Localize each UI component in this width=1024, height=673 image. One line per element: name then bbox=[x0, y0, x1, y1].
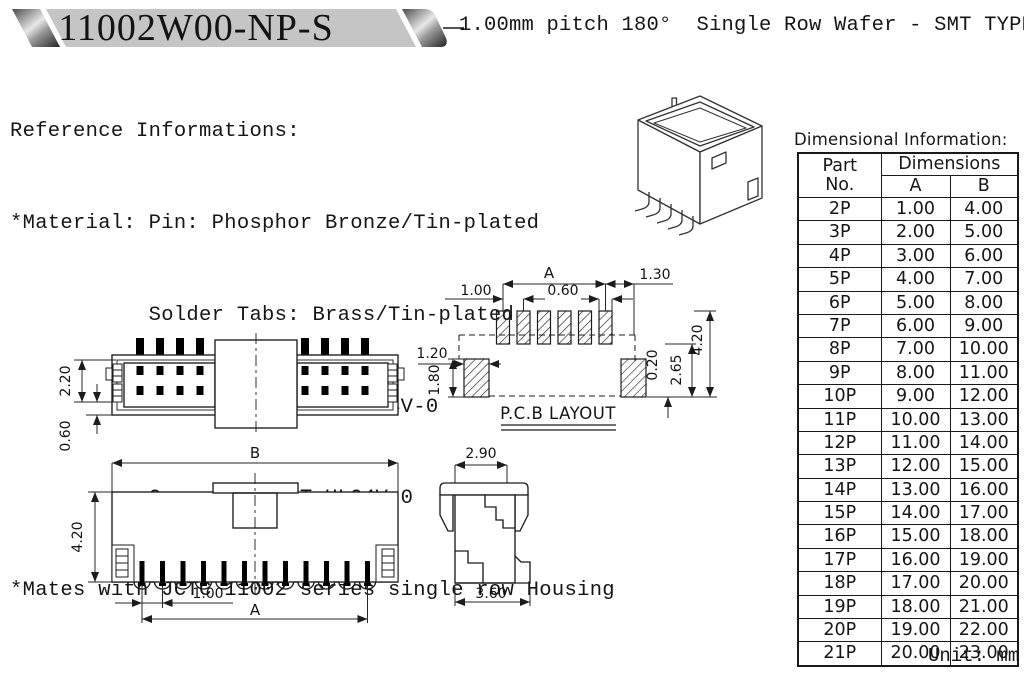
side-view-right-tab bbox=[515, 495, 528, 531]
part-no-cell: 20P bbox=[798, 619, 881, 642]
dimensions-header: Dimensions bbox=[881, 153, 1018, 176]
dim-a-cell: 1.00 bbox=[881, 198, 950, 221]
part-no-cell: 17P bbox=[798, 548, 881, 571]
dim-b-cell: 7.00 bbox=[950, 268, 1018, 291]
part-no-cell: 12P bbox=[798, 431, 881, 454]
table-row: 18P17.0020.00 bbox=[798, 572, 1018, 595]
dim-label-4-20: 4.20 bbox=[690, 324, 706, 355]
part-no-cell: 8P bbox=[798, 338, 881, 361]
part-no-cell: 3P bbox=[798, 221, 881, 244]
dim-b-cell: 21.00 bbox=[950, 595, 1018, 618]
dim-a-cell: 6.00 bbox=[881, 314, 950, 337]
dim-a-cell: 16.00 bbox=[881, 548, 950, 571]
dimension-table: PartNo. Dimensions A B 2P1.004.00 3P2.00… bbox=[797, 152, 1019, 667]
table-row: 8P7.0010.00 bbox=[798, 338, 1018, 361]
dim-b-cell: 17.00 bbox=[950, 502, 1018, 525]
table-row: 19P18.0021.00 bbox=[798, 595, 1018, 618]
part-no-cell: 16P bbox=[798, 525, 881, 548]
part-no-cell: 19P bbox=[798, 595, 881, 618]
part-number: 11002W00-NP-S bbox=[58, 7, 333, 49]
pcb-pads bbox=[464, 311, 646, 397]
dim-label-3-60: 3.60 bbox=[475, 586, 506, 602]
part-no-cell: 18P bbox=[798, 572, 881, 595]
dim-b-cell: 20.00 bbox=[950, 572, 1018, 595]
part-no-cell: 4P bbox=[798, 244, 881, 267]
table-row: 2P1.004.00 bbox=[798, 198, 1018, 221]
dim-b-cell: 19.00 bbox=[950, 548, 1018, 571]
dim-a-cell: 11.00 bbox=[881, 431, 950, 454]
dim-label-2-20: 2.20 bbox=[58, 365, 74, 396]
dim-b-cell: 14.00 bbox=[950, 431, 1018, 454]
dim-a-cell: 9.00 bbox=[881, 385, 950, 408]
table-row: 12P11.0014.00 bbox=[798, 431, 1018, 454]
table-row: 7P6.009.00 bbox=[798, 314, 1018, 337]
title-banner: 11002W00-NP-S bbox=[0, 0, 470, 56]
side-view-flange bbox=[440, 483, 528, 495]
table-row: 14P13.0016.00 bbox=[798, 478, 1018, 501]
dim-b-cell: 10.00 bbox=[950, 338, 1018, 361]
dim-b-cell: 12.00 bbox=[950, 385, 1018, 408]
side-view-left-tab bbox=[440, 495, 453, 531]
dim-a-cell: 12.00 bbox=[881, 455, 950, 478]
part-no-cell: 21P bbox=[798, 642, 881, 666]
table-row: 13P12.0015.00 bbox=[798, 455, 1018, 478]
table-row: 15P14.0017.00 bbox=[798, 502, 1018, 525]
part-no-cell: 7P bbox=[798, 314, 881, 337]
part-no-header: PartNo. bbox=[798, 153, 881, 198]
dim-a-cell: 8.00 bbox=[881, 361, 950, 384]
dim-a-cell: 2.00 bbox=[881, 221, 950, 244]
pcb-left-tab-pad bbox=[464, 359, 489, 397]
side-view-dim-360: 3.60 bbox=[455, 586, 530, 606]
dim-label-a: A bbox=[250, 601, 261, 619]
part-no-cell: 13P bbox=[798, 455, 881, 478]
part-no-cell: 11P bbox=[798, 408, 881, 431]
dim-a-cell: 13.00 bbox=[881, 478, 950, 501]
dim-a-cell: 19.00 bbox=[881, 619, 950, 642]
unit-note: Unit: mm bbox=[928, 645, 1019, 667]
dim-a-cell: 15.00 bbox=[881, 525, 950, 548]
part-no-cell: 5P bbox=[798, 268, 881, 291]
dim-label-a: A bbox=[544, 264, 555, 282]
dim-label-4-20: 4.20 bbox=[70, 521, 86, 552]
table-row: 16P15.0018.00 bbox=[798, 525, 1018, 548]
dim-b-cell: 15.00 bbox=[950, 455, 1018, 478]
part-no-cell: 14P bbox=[798, 478, 881, 501]
table-row: 20P19.0022.00 bbox=[798, 619, 1018, 642]
datasheet-page: 11002W00-NP-S 1.00mm pitch 180° Single R… bbox=[0, 0, 1024, 673]
dim-b-cell: 5.00 bbox=[950, 221, 1018, 244]
table-row: 4P3.006.00 bbox=[798, 244, 1018, 267]
top-view-drawing: 2.20 0.60 bbox=[60, 278, 425, 473]
dim-b-cell: 18.00 bbox=[950, 525, 1018, 548]
dim-label-1-80: 1.80 bbox=[427, 364, 443, 395]
table-title: Dimensional Information: bbox=[794, 130, 1008, 149]
part-no-cell: 6P bbox=[798, 291, 881, 314]
table-row: 17P16.0019.00 bbox=[798, 548, 1018, 571]
dim-a-cell: 5.00 bbox=[881, 291, 950, 314]
table-row: 3P2.005.00 bbox=[798, 221, 1018, 244]
dim-b-cell: 6.00 bbox=[950, 244, 1018, 267]
pcb-right-tab-pad bbox=[621, 359, 646, 397]
dim-b-cell: 4.00 bbox=[950, 198, 1018, 221]
front-view-dim-100-a: 1.00 A bbox=[115, 586, 368, 623]
table-header-row: PartNo. Dimensions bbox=[798, 153, 1018, 176]
dim-label-1-20: 1.20 bbox=[416, 346, 447, 362]
reference-line: *Material: Pin: Phosphor Bronze/Tin-plat… bbox=[10, 209, 615, 240]
dim-a-cell: 18.00 bbox=[881, 595, 950, 618]
front-view-drawing: B 4.20 bbox=[58, 445, 430, 627]
dim-b-cell: 22.00 bbox=[950, 619, 1018, 642]
dim-b-cell: 11.00 bbox=[950, 361, 1018, 384]
dim-label-0-20: 0.20 bbox=[645, 349, 661, 380]
dim-label-2-90: 2.90 bbox=[465, 446, 496, 462]
dim-label-b: B bbox=[250, 444, 260, 462]
reference-title: Reference Informations: bbox=[10, 117, 615, 148]
table-row: 6P5.008.00 bbox=[798, 291, 1018, 314]
dim-a-cell: 7.00 bbox=[881, 338, 950, 361]
part-no-cell: 15P bbox=[798, 502, 881, 525]
pcb-layout-drawing: A 1.30 1.00 0.60 1.20 1.80 bbox=[415, 258, 725, 440]
part-no-cell: 10P bbox=[798, 385, 881, 408]
dim-label-2-65: 2.65 bbox=[669, 354, 685, 385]
table-row: 10P9.0012.00 bbox=[798, 385, 1018, 408]
dim-label-0-60: 0.60 bbox=[547, 283, 578, 299]
dim-label-1-00: 1.00 bbox=[192, 586, 223, 602]
dim-a-cell: 3.00 bbox=[881, 244, 950, 267]
dim-label-1-00: 1.00 bbox=[460, 283, 491, 299]
side-view-dim-290: 2.90 bbox=[455, 446, 507, 483]
dim-b-cell: 9.00 bbox=[950, 314, 1018, 337]
table-row: 5P4.007.00 bbox=[798, 268, 1018, 291]
side-view-drawing: 2.90 3.60 bbox=[433, 443, 548, 613]
part-no-cell: 2P bbox=[798, 198, 881, 221]
dim-a-cell: 14.00 bbox=[881, 502, 950, 525]
part-no-cell: 9P bbox=[798, 361, 881, 384]
front-view-dim-420: 4.20 bbox=[70, 492, 112, 582]
dim-b-header: B bbox=[950, 176, 1018, 198]
dim-a-cell: 17.00 bbox=[881, 572, 950, 595]
isometric-view-drawing bbox=[612, 86, 787, 231]
dim-label-1-30: 1.30 bbox=[639, 267, 670, 283]
dim-b-cell: 8.00 bbox=[950, 291, 1018, 314]
table-row: 9P8.0011.00 bbox=[798, 361, 1018, 384]
table-row: 11P10.0013.00 bbox=[798, 408, 1018, 431]
dim-a-cell: 4.00 bbox=[881, 268, 950, 291]
banner-subtitle: 1.00mm pitch 180° Single Row Wafer - SMT… bbox=[459, 14, 1024, 37]
dim-a-cell: 10.00 bbox=[881, 408, 950, 431]
dim-b-cell: 16.00 bbox=[950, 478, 1018, 501]
dim-a-header: A bbox=[881, 176, 950, 198]
iso-solder-tab bbox=[748, 178, 758, 200]
pcb-layout-label: P.C.B LAYOUT bbox=[500, 404, 616, 423]
side-view-body bbox=[455, 495, 515, 583]
front-view-top-tab bbox=[213, 483, 298, 493]
dim-b-cell: 13.00 bbox=[950, 408, 1018, 431]
